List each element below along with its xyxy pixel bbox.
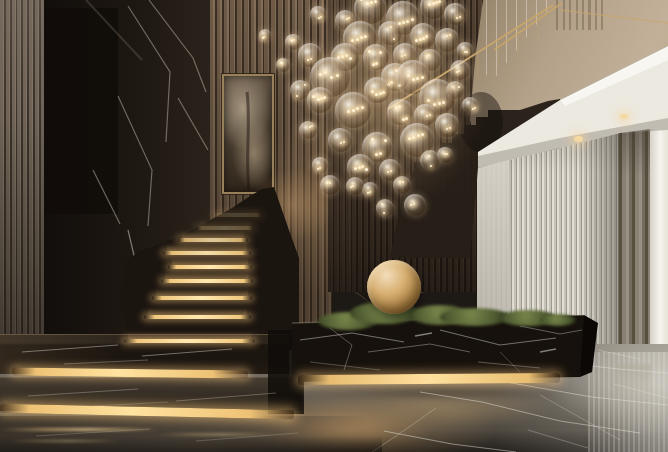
moss-mound <box>540 314 576 326</box>
planter-moss <box>0 0 668 452</box>
interior-photo: 25 SPACES real estate <box>0 0 668 452</box>
gold-sphere-large <box>367 260 421 314</box>
